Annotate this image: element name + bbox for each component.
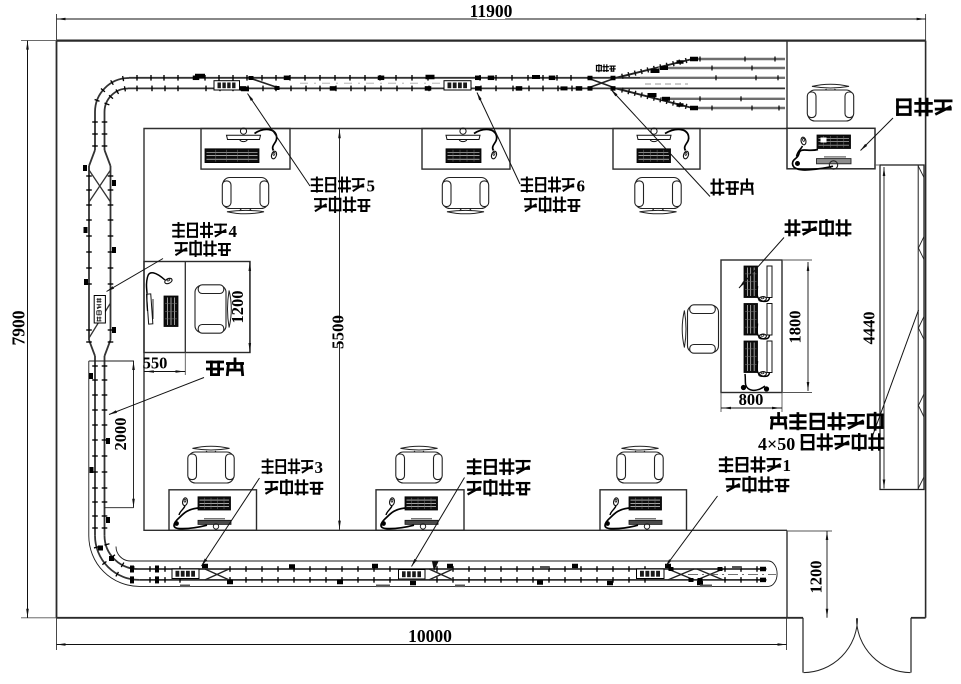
svg-text:10000: 10000 [408,626,452,646]
svg-text:1800: 1800 [786,311,805,344]
svg-text:3: 3 [315,458,324,477]
svg-text:5: 5 [367,177,376,196]
svg-text:6: 6 [577,177,586,196]
svg-text:5500: 5500 [329,315,348,349]
svg-text:4440: 4440 [860,312,879,345]
svg-text:800: 800 [739,390,764,409]
svg-text:4×50: 4×50 [758,434,795,454]
svg-text:1200: 1200 [228,291,247,324]
svg-text:1200: 1200 [807,561,826,594]
svg-text:1: 1 [783,456,792,475]
svg-text:4: 4 [229,222,238,241]
svg-text:11900: 11900 [470,1,513,21]
svg-text:550: 550 [143,354,168,373]
svg-text:2000: 2000 [111,418,130,451]
svg-text:7900: 7900 [9,310,29,345]
